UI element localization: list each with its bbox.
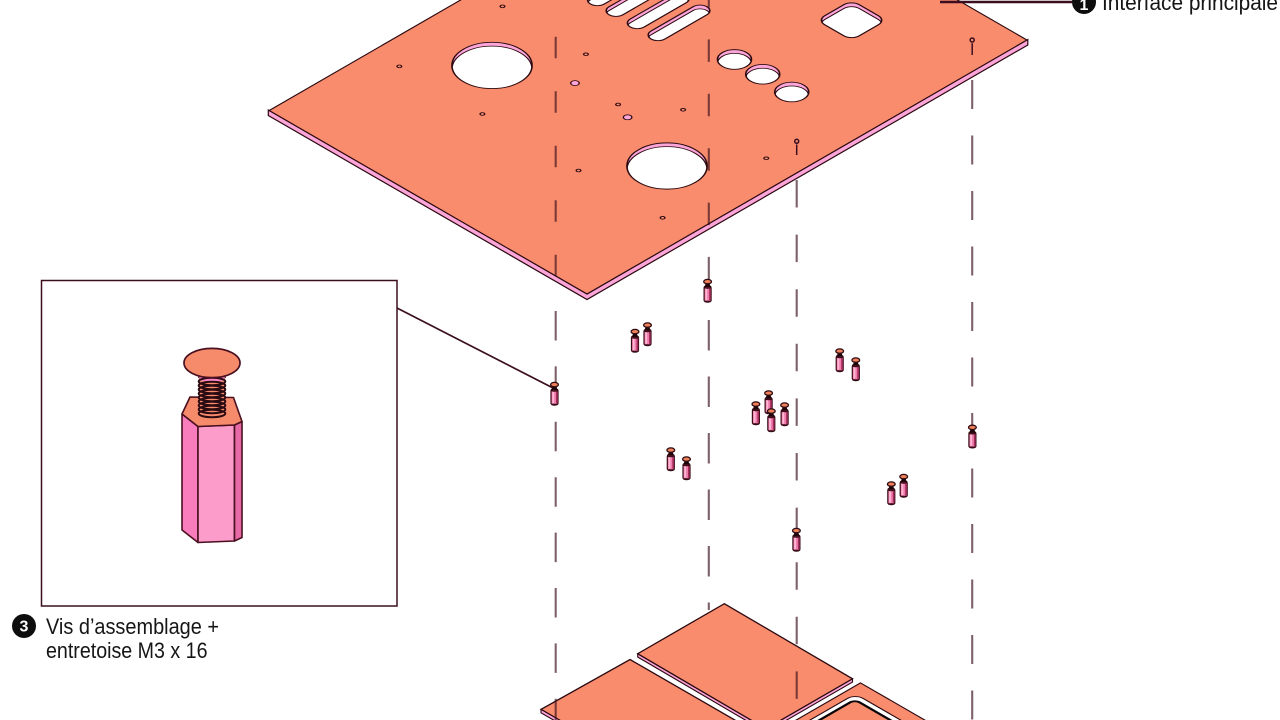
svg-text:3: 3 — [20, 619, 29, 636]
svg-text:1: 1 — [1080, 0, 1089, 14]
svg-text:entretoise M3 x 16: entretoise M3 x 16 — [46, 638, 208, 663]
svg-text:Interface principale: Interface principale — [1102, 0, 1278, 15]
svg-text:Vis d’assemblage +: Vis d’assemblage + — [46, 614, 219, 639]
